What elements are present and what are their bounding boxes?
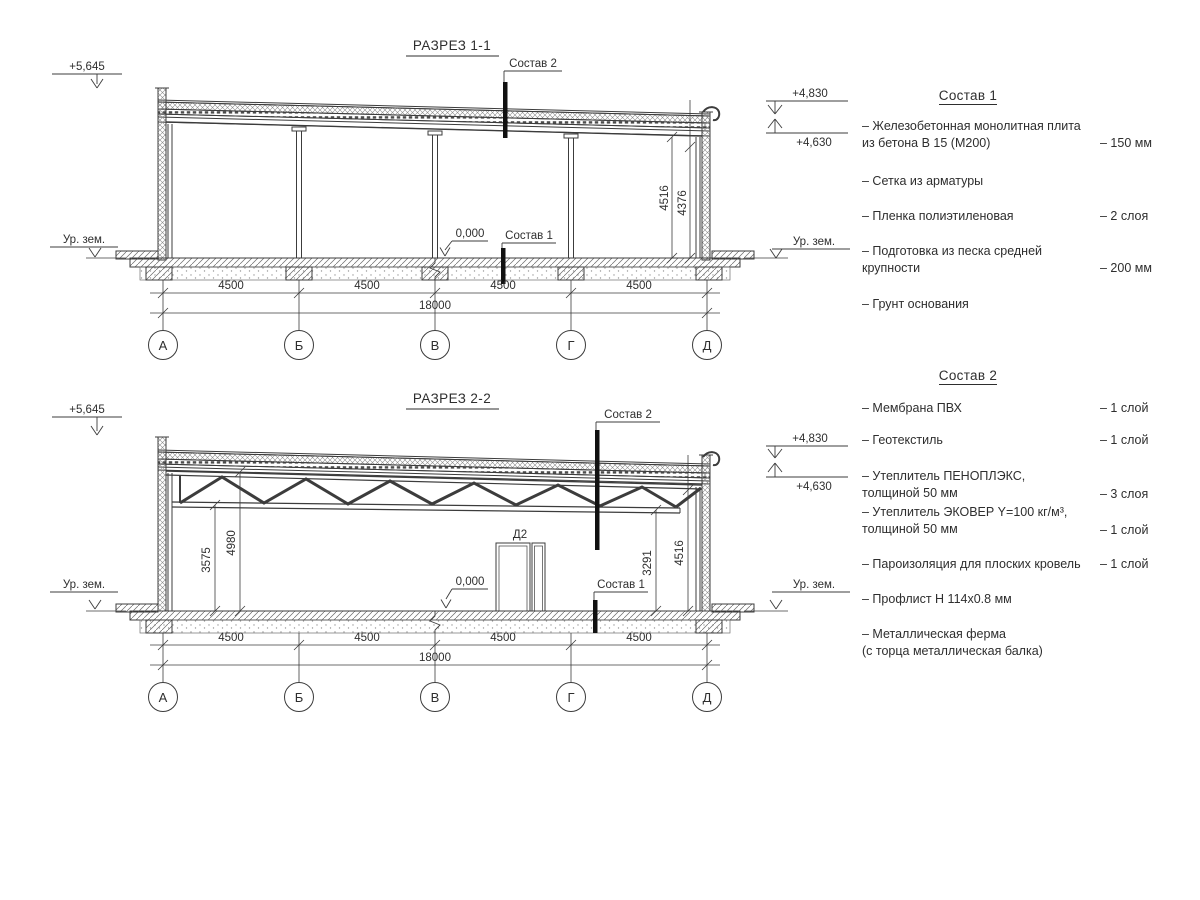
legend-1-item: – Сетка из арматуры (862, 173, 1107, 190)
elev-right-mid-label: +4,630 (796, 137, 832, 149)
vdim-4980: 4980 (226, 530, 238, 556)
callout-sostav1-label: Состав 1 (597, 579, 645, 591)
section-2 (50, 417, 850, 712)
vdim-3575: 3575 (201, 547, 213, 573)
span-dim: 4500 (490, 632, 516, 644)
section-1 (50, 71, 850, 360)
elev-left-label: +5,645 (69, 61, 105, 73)
ground-left-label: Ур. зем. (63, 579, 105, 591)
section-2-texts: РАЗРЕЗ 2-2 Состав 2 Состав 1 0,000 +5,64… (63, 391, 835, 705)
callout-sostav2-1 (503, 71, 562, 138)
legend-2-item: – Геотекстиль (862, 432, 1107, 449)
elev-left-mark-1 (52, 74, 122, 88)
legend-1-title: Состав 1 (858, 88, 1078, 105)
legend-1-item: – Железобетонная монолитная плита из бет… (862, 118, 1107, 152)
legend-1-value: – 2 слоя (1100, 208, 1195, 225)
axis-label: Д (703, 690, 712, 705)
section-1-texts: РАЗРЕЗ 1-1 Состав 2 Состав 1 0,000 +5,64… (63, 38, 835, 353)
ground-right-label: Ур. зем. (793, 236, 835, 248)
elev-zero-mark-1 (440, 241, 488, 256)
elev-zero-mark-2 (441, 589, 488, 608)
span-dim: 4500 (218, 632, 244, 644)
roof-truss (166, 471, 702, 513)
vdim-4516: 4516 (674, 540, 686, 566)
legend-1-value: – 200 мм (1100, 260, 1195, 277)
legend-2-item: – Утеплитель ПЕНОПЛЭКС, толщиной 50 мм (862, 468, 1107, 502)
axis-label: Г (567, 690, 574, 705)
roof-assembly-2 (158, 450, 710, 484)
callout-sostav2-label: Состав 2 (509, 58, 557, 70)
axis-label: В (431, 338, 440, 353)
axis-label: А (159, 338, 168, 353)
callout-sostav2-label: Состав 2 (604, 409, 652, 421)
axis-label: В (431, 690, 440, 705)
elev-right-top-label: +4,830 (792, 433, 828, 445)
door-label: Д2 (513, 529, 527, 541)
axis-label: А (159, 690, 168, 705)
legend-2-value: – 1 слой (1100, 556, 1195, 573)
axis-label: Д (703, 338, 712, 353)
axis-label: Б (295, 690, 304, 705)
total-dim: 18000 (419, 652, 451, 664)
ground-right-label: Ур. зем. (793, 579, 835, 591)
elev-right-top-label: +4,830 (792, 88, 828, 100)
section-1-title: РАЗРЕЗ 1-1 (413, 38, 491, 53)
span-dim: 4500 (626, 632, 652, 644)
elev-left-label: +5,645 (69, 404, 105, 416)
legend-2-value: – 1 слой (1100, 400, 1195, 417)
legend-1-item: – Пленка полиэтиленовая (862, 208, 1107, 225)
door-d2 (496, 543, 545, 611)
legend-1-item: – Грунт основания (862, 296, 1107, 313)
floor-2 (86, 604, 788, 633)
vdim-4516: 4516 (659, 185, 671, 211)
legend-2-value: – 1 слой (1100, 432, 1195, 449)
elev-zero-label: 0,000 (456, 228, 485, 240)
legend-2-item: – Металлическая ферма (с торца металличе… (862, 626, 1107, 660)
elev-left-mark-2 (52, 417, 122, 435)
elev-zero-label: 0,000 (456, 576, 485, 588)
span-dim: 4500 (354, 632, 380, 644)
vdim-3291: 3291 (642, 550, 654, 576)
section-2-title: РАЗРЕЗ 2-2 (413, 391, 491, 406)
span-dim: 4500 (626, 280, 652, 292)
total-dim: 18000 (419, 300, 451, 312)
legend-2-value: – 1 слой (1100, 522, 1195, 539)
axis-label: Г (567, 338, 574, 353)
vdim-4376: 4376 (677, 190, 689, 216)
elev-right-marks-2 (766, 446, 848, 477)
elev-right-mid-label: +4,630 (796, 481, 832, 493)
axis-label: Б (295, 338, 304, 353)
legend-2-item: – Профлист Н 114х0.8 мм (862, 591, 1107, 608)
span-dim: 4500 (490, 280, 516, 292)
right-wall-1 (696, 107, 719, 260)
legend-2-item: – Мембрана ПВХ (862, 400, 1107, 417)
elev-right-marks-1 (766, 101, 848, 133)
legend-1-item: – Подготовка из песка средней крупности (862, 243, 1107, 277)
legend-2-item: – Пароизоляция для плоских кровель (862, 556, 1107, 573)
span-dim: 4500 (354, 280, 380, 292)
legend-2-title: Состав 2 (858, 368, 1078, 385)
callout-sostav1-label: Состав 1 (505, 230, 553, 242)
ground-left-label: Ур. зем. (63, 234, 105, 246)
span-dim: 4500 (218, 280, 244, 292)
legend-2-value: – 3 слоя (1100, 486, 1195, 503)
legend-2-item: – Утеплитель ЭКОВЕР Y=100 кг/м³, толщино… (862, 504, 1107, 538)
legend-1-value: – 150 мм (1100, 135, 1195, 152)
